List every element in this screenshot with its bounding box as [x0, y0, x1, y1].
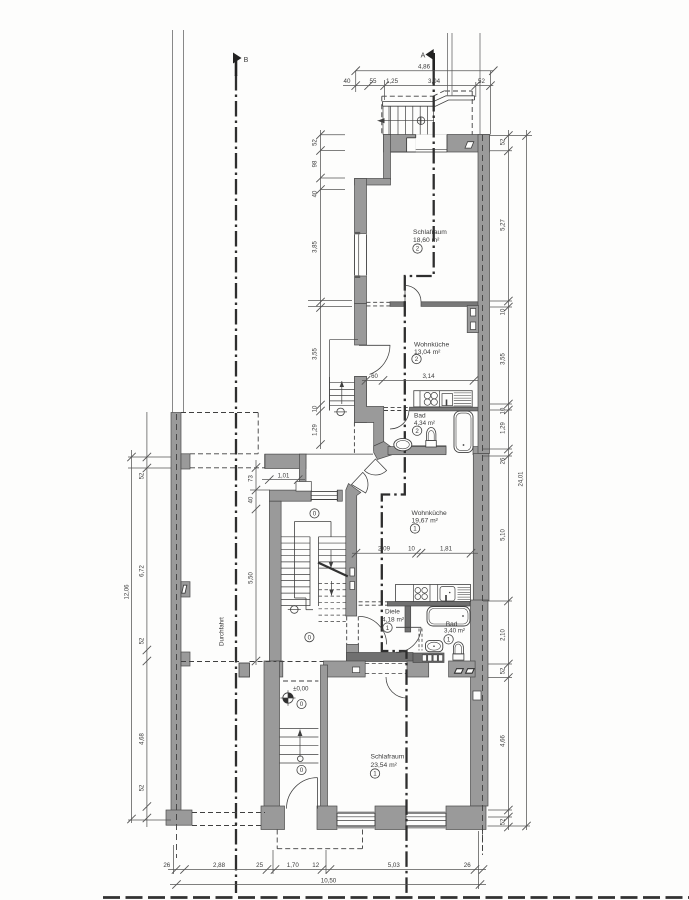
svg-text:B: B: [244, 57, 249, 64]
svg-text:40: 40: [344, 78, 351, 85]
svg-text:1,70: 1,70: [287, 862, 300, 869]
svg-text:52: 52: [140, 472, 146, 479]
svg-text:Wohnküche: Wohnküche: [412, 510, 447, 517]
svg-text:1,29: 1,29: [313, 424, 319, 436]
svg-text:1: 1: [413, 526, 417, 533]
svg-text:60: 60: [371, 374, 378, 380]
svg-text:5,10: 5,10: [501, 529, 507, 541]
svg-text:Durchfahrt: Durchfahrt: [219, 617, 226, 646]
svg-text:2: 2: [415, 356, 419, 363]
svg-text:52: 52: [140, 784, 146, 791]
svg-text:6,72: 6,72: [140, 565, 146, 577]
svg-text:25: 25: [256, 862, 263, 869]
svg-text:3,55: 3,55: [313, 348, 319, 360]
svg-text:2,10: 2,10: [501, 629, 507, 641]
svg-text:Schlafraum: Schlafraum: [413, 229, 447, 236]
svg-text:3,04: 3,04: [428, 78, 441, 85]
svg-text:2: 2: [415, 428, 419, 435]
svg-text:18,60 m²: 18,60 m²: [413, 237, 440, 244]
svg-text:5,03: 5,03: [388, 862, 401, 869]
svg-text:24,01: 24,01: [519, 471, 525, 487]
svg-text:52: 52: [501, 138, 507, 145]
svg-text:26: 26: [464, 862, 471, 869]
svg-text:40: 40: [313, 190, 319, 197]
svg-text:Diele: Diele: [385, 609, 400, 616]
svg-text:0: 0: [300, 767, 304, 774]
svg-text:12,06: 12,06: [125, 584, 131, 600]
svg-text:26: 26: [163, 862, 170, 869]
svg-text:3,85: 3,85: [313, 241, 319, 253]
svg-text:98: 98: [313, 160, 319, 167]
svg-text:1,25: 1,25: [386, 78, 399, 85]
svg-text:0: 0: [300, 701, 304, 708]
svg-text:2: 2: [416, 246, 420, 253]
svg-text:2,88: 2,88: [213, 862, 226, 869]
svg-text:73: 73: [249, 475, 255, 482]
svg-text:52: 52: [140, 637, 146, 644]
svg-text:4,86: 4,86: [418, 63, 431, 70]
svg-text:52: 52: [478, 78, 485, 85]
svg-text:4,66: 4,66: [501, 735, 507, 747]
svg-text:5,50: 5,50: [249, 572, 255, 584]
svg-text:Schlafraum: Schlafraum: [371, 754, 405, 761]
svg-text:1: 1: [373, 771, 377, 778]
svg-text:13,04 m²: 13,04 m²: [414, 349, 441, 356]
svg-text:4,18 m²: 4,18 m²: [382, 617, 405, 624]
svg-text:2,09: 2,09: [378, 546, 391, 553]
svg-text:5,27: 5,27: [501, 219, 507, 231]
svg-text:3,55: 3,55: [501, 353, 507, 365]
svg-text:10: 10: [408, 547, 415, 553]
svg-text:52: 52: [501, 667, 507, 674]
svg-text:52: 52: [501, 818, 507, 825]
svg-text:1,29: 1,29: [501, 422, 507, 434]
svg-text:55: 55: [370, 78, 377, 85]
svg-text:1: 1: [386, 625, 390, 632]
svg-text:Wohnküche: Wohnküche: [414, 342, 449, 349]
svg-text:26: 26: [501, 457, 507, 464]
svg-text:23,54 m²: 23,54 m²: [371, 762, 398, 769]
svg-text:0: 0: [308, 634, 312, 641]
svg-text:1,01: 1,01: [278, 473, 290, 479]
svg-text:A: A: [421, 53, 426, 60]
svg-text:0: 0: [313, 511, 317, 518]
svg-text:10: 10: [501, 407, 507, 414]
svg-text:1: 1: [447, 637, 451, 644]
svg-text:10: 10: [313, 405, 319, 412]
svg-text:3,40 m²: 3,40 m²: [444, 627, 465, 634]
svg-text:Bad: Bad: [414, 412, 426, 419]
svg-text:3,14: 3,14: [422, 373, 435, 380]
svg-text:10,50: 10,50: [321, 878, 337, 885]
svg-text:4,68: 4,68: [140, 733, 146, 745]
svg-text:52: 52: [313, 139, 319, 146]
svg-text:40: 40: [249, 496, 255, 503]
svg-text:12: 12: [312, 862, 319, 869]
svg-text:1,81: 1,81: [440, 546, 453, 553]
svg-text:19,67 m²: 19,67 m²: [412, 517, 439, 524]
svg-text:±0,00: ±0,00: [293, 686, 309, 693]
svg-text:10: 10: [501, 308, 507, 315]
